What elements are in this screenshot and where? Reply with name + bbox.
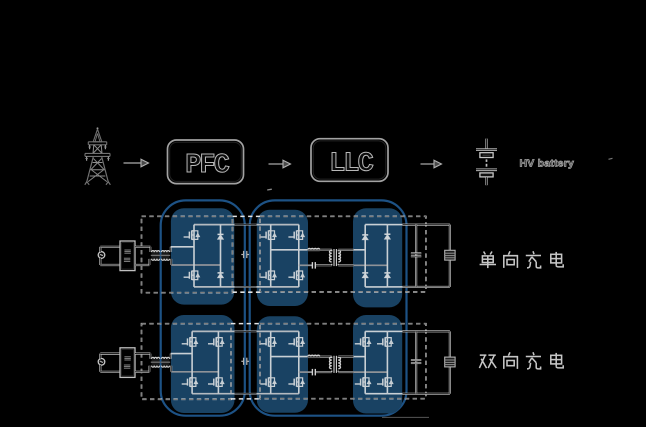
- svg-text:HV battery: HV battery: [520, 157, 575, 169]
- svg-text:LLC: LLC: [329, 150, 373, 180]
- svg-text:PFC: PFC: [185, 151, 229, 181]
